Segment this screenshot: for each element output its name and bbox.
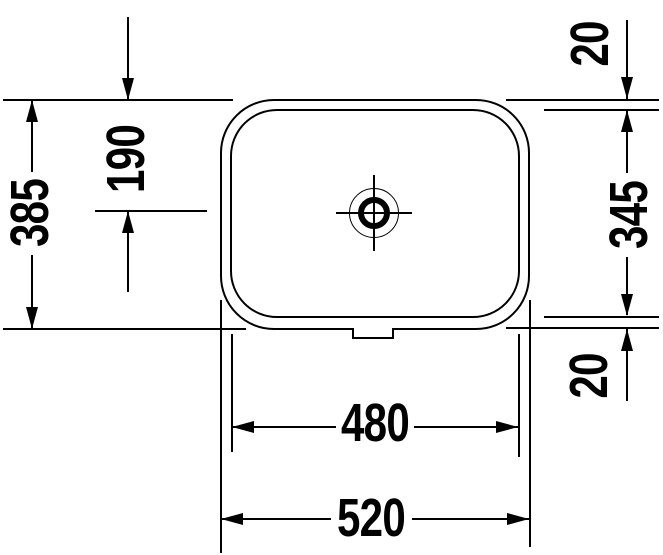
arrowhead-20-top-down <box>621 77 633 99</box>
extension-line-right-outer-top <box>506 99 659 101</box>
dimension-line-480-left <box>232 426 336 428</box>
arrowhead-385-up <box>26 100 38 122</box>
drain-crosshair-vertical <box>373 175 375 251</box>
extension-line-right-inner-bottom <box>544 316 659 318</box>
dim-label-overall-width: 520 <box>337 491 405 545</box>
arrowhead-385-down <box>26 307 38 329</box>
extension-line-bottom-inner-left <box>231 334 233 452</box>
arrowhead-480-right <box>496 421 518 433</box>
dim-label-drain-offset: 190 <box>99 125 153 193</box>
extension-line-right-inner-top <box>544 109 659 111</box>
extension-line-bottom-outer-right <box>529 300 531 547</box>
dim-label-overall-depth: 385 <box>3 179 57 247</box>
basin-front-tab <box>352 328 394 339</box>
dimension-line-345-upper <box>626 110 628 173</box>
dim-label-inner-width: 480 <box>341 396 409 450</box>
extension-line-drain-center <box>95 210 207 212</box>
technical-drawing-canvas: 385 190 20 345 20 480 520 <box>0 0 663 555</box>
extension-line-bottom-left <box>3 328 246 330</box>
dim-label-inner-depth: 345 <box>602 181 656 249</box>
arrowhead-345-down <box>621 294 633 316</box>
dim-label-rim-bottom: 20 <box>562 353 616 398</box>
dimension-line-20-bottom <box>626 329 628 401</box>
dim-label-rim-top: 20 <box>563 21 617 66</box>
arrowhead-520-right <box>507 513 529 525</box>
arrowhead-190-down <box>122 78 134 100</box>
arrowhead-190-up <box>122 211 134 233</box>
extension-line-bottom-inner-right <box>518 334 520 457</box>
dimension-line-520-left <box>221 518 331 520</box>
